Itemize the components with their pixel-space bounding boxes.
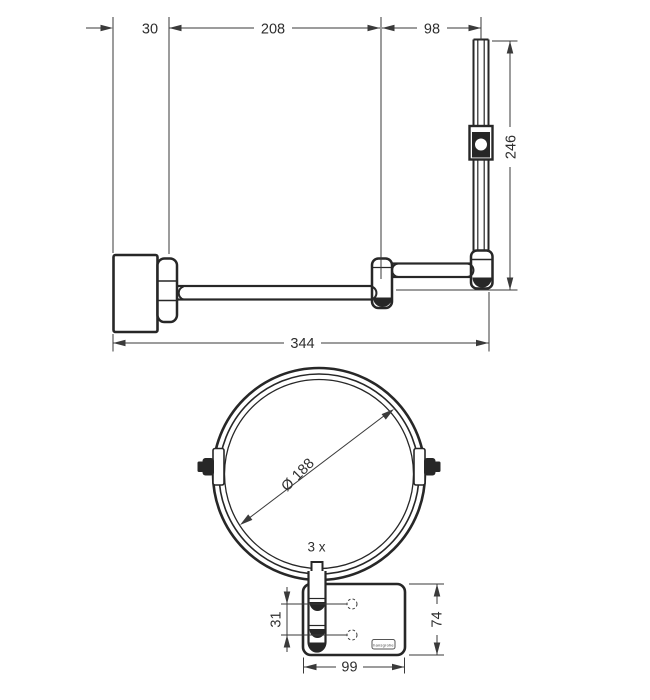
arrowhead bbox=[113, 340, 126, 347]
arrowhead bbox=[434, 643, 441, 656]
post-column bbox=[309, 562, 326, 652]
arrowhead bbox=[284, 635, 291, 648]
arrowhead bbox=[469, 25, 482, 32]
dim-label-mirror-diameter: Ø 188 bbox=[279, 456, 318, 495]
dim-mirror-diameter: Ø 188 bbox=[240, 409, 394, 525]
arrowhead bbox=[382, 25, 395, 32]
swivel-joint bbox=[371, 259, 398, 309]
lower-arm bbox=[177, 286, 374, 300]
mirror-dimension-drawing: 30 208 98 246 bbox=[0, 0, 650, 700]
dim-label-upper-arm-reach: 98 bbox=[424, 22, 440, 38]
dim-label-bar-height: 246 bbox=[504, 135, 520, 159]
wall-plate-side bbox=[114, 255, 158, 332]
dim-label-plate-width: 99 bbox=[341, 660, 357, 676]
pivot-bracket bbox=[414, 449, 425, 486]
arrowhead bbox=[304, 664, 317, 671]
pivot-nub bbox=[435, 462, 441, 473]
arrowhead bbox=[434, 584, 441, 597]
elbow-joint bbox=[468, 251, 493, 289]
brand-logo: hansgrohe bbox=[372, 640, 395, 650]
arrowhead bbox=[368, 25, 381, 32]
dim-bar-height: 246 bbox=[396, 41, 520, 290]
dim-plate-height: 74 bbox=[409, 584, 446, 655]
arrowhead bbox=[392, 664, 405, 671]
hinge-body bbox=[158, 259, 178, 323]
dim-label-plate-height: 74 bbox=[430, 611, 446, 627]
arrowhead bbox=[507, 41, 514, 54]
pivot-bracket bbox=[213, 449, 224, 486]
slider-clamp bbox=[470, 126, 493, 160]
logo-text: hansgrohe bbox=[373, 643, 394, 648]
right-pivot bbox=[414, 449, 441, 486]
dim-label-lower-arm-reach: 208 bbox=[261, 22, 285, 38]
arrowhead bbox=[101, 25, 114, 32]
dim-lower-arm-reach: 208 bbox=[169, 22, 380, 38]
post-body bbox=[309, 571, 326, 652]
left-pivot bbox=[198, 449, 225, 486]
front-view: hansgrohe 3 x bbox=[198, 368, 441, 655]
pivot-nub bbox=[198, 462, 204, 473]
pivot-knob bbox=[203, 458, 215, 476]
arrowhead bbox=[284, 592, 291, 605]
dim-upper-arm-reach: 98 bbox=[382, 22, 481, 38]
magnification-label: 3 x bbox=[307, 540, 325, 555]
clamp-knob bbox=[474, 138, 488, 152]
wall-hinge bbox=[158, 259, 184, 323]
upper-arm bbox=[390, 264, 473, 278]
arrowhead bbox=[240, 514, 252, 525]
arrowhead bbox=[507, 278, 514, 291]
side-view bbox=[114, 40, 493, 333]
technical-drawing-page: 30 208 98 246 bbox=[0, 0, 650, 700]
dim-label-total-reach: 344 bbox=[290, 336, 314, 352]
arrowhead bbox=[476, 340, 489, 347]
dim-label-screw-hole-spacing: 31 bbox=[269, 611, 285, 627]
dim-plate-width: 99 bbox=[304, 658, 405, 676]
arrowhead bbox=[169, 25, 182, 32]
pivot-knob bbox=[424, 458, 436, 476]
dim-label-wall-offset: 30 bbox=[142, 22, 158, 38]
dim-wall-offset: 30 bbox=[86, 22, 158, 38]
